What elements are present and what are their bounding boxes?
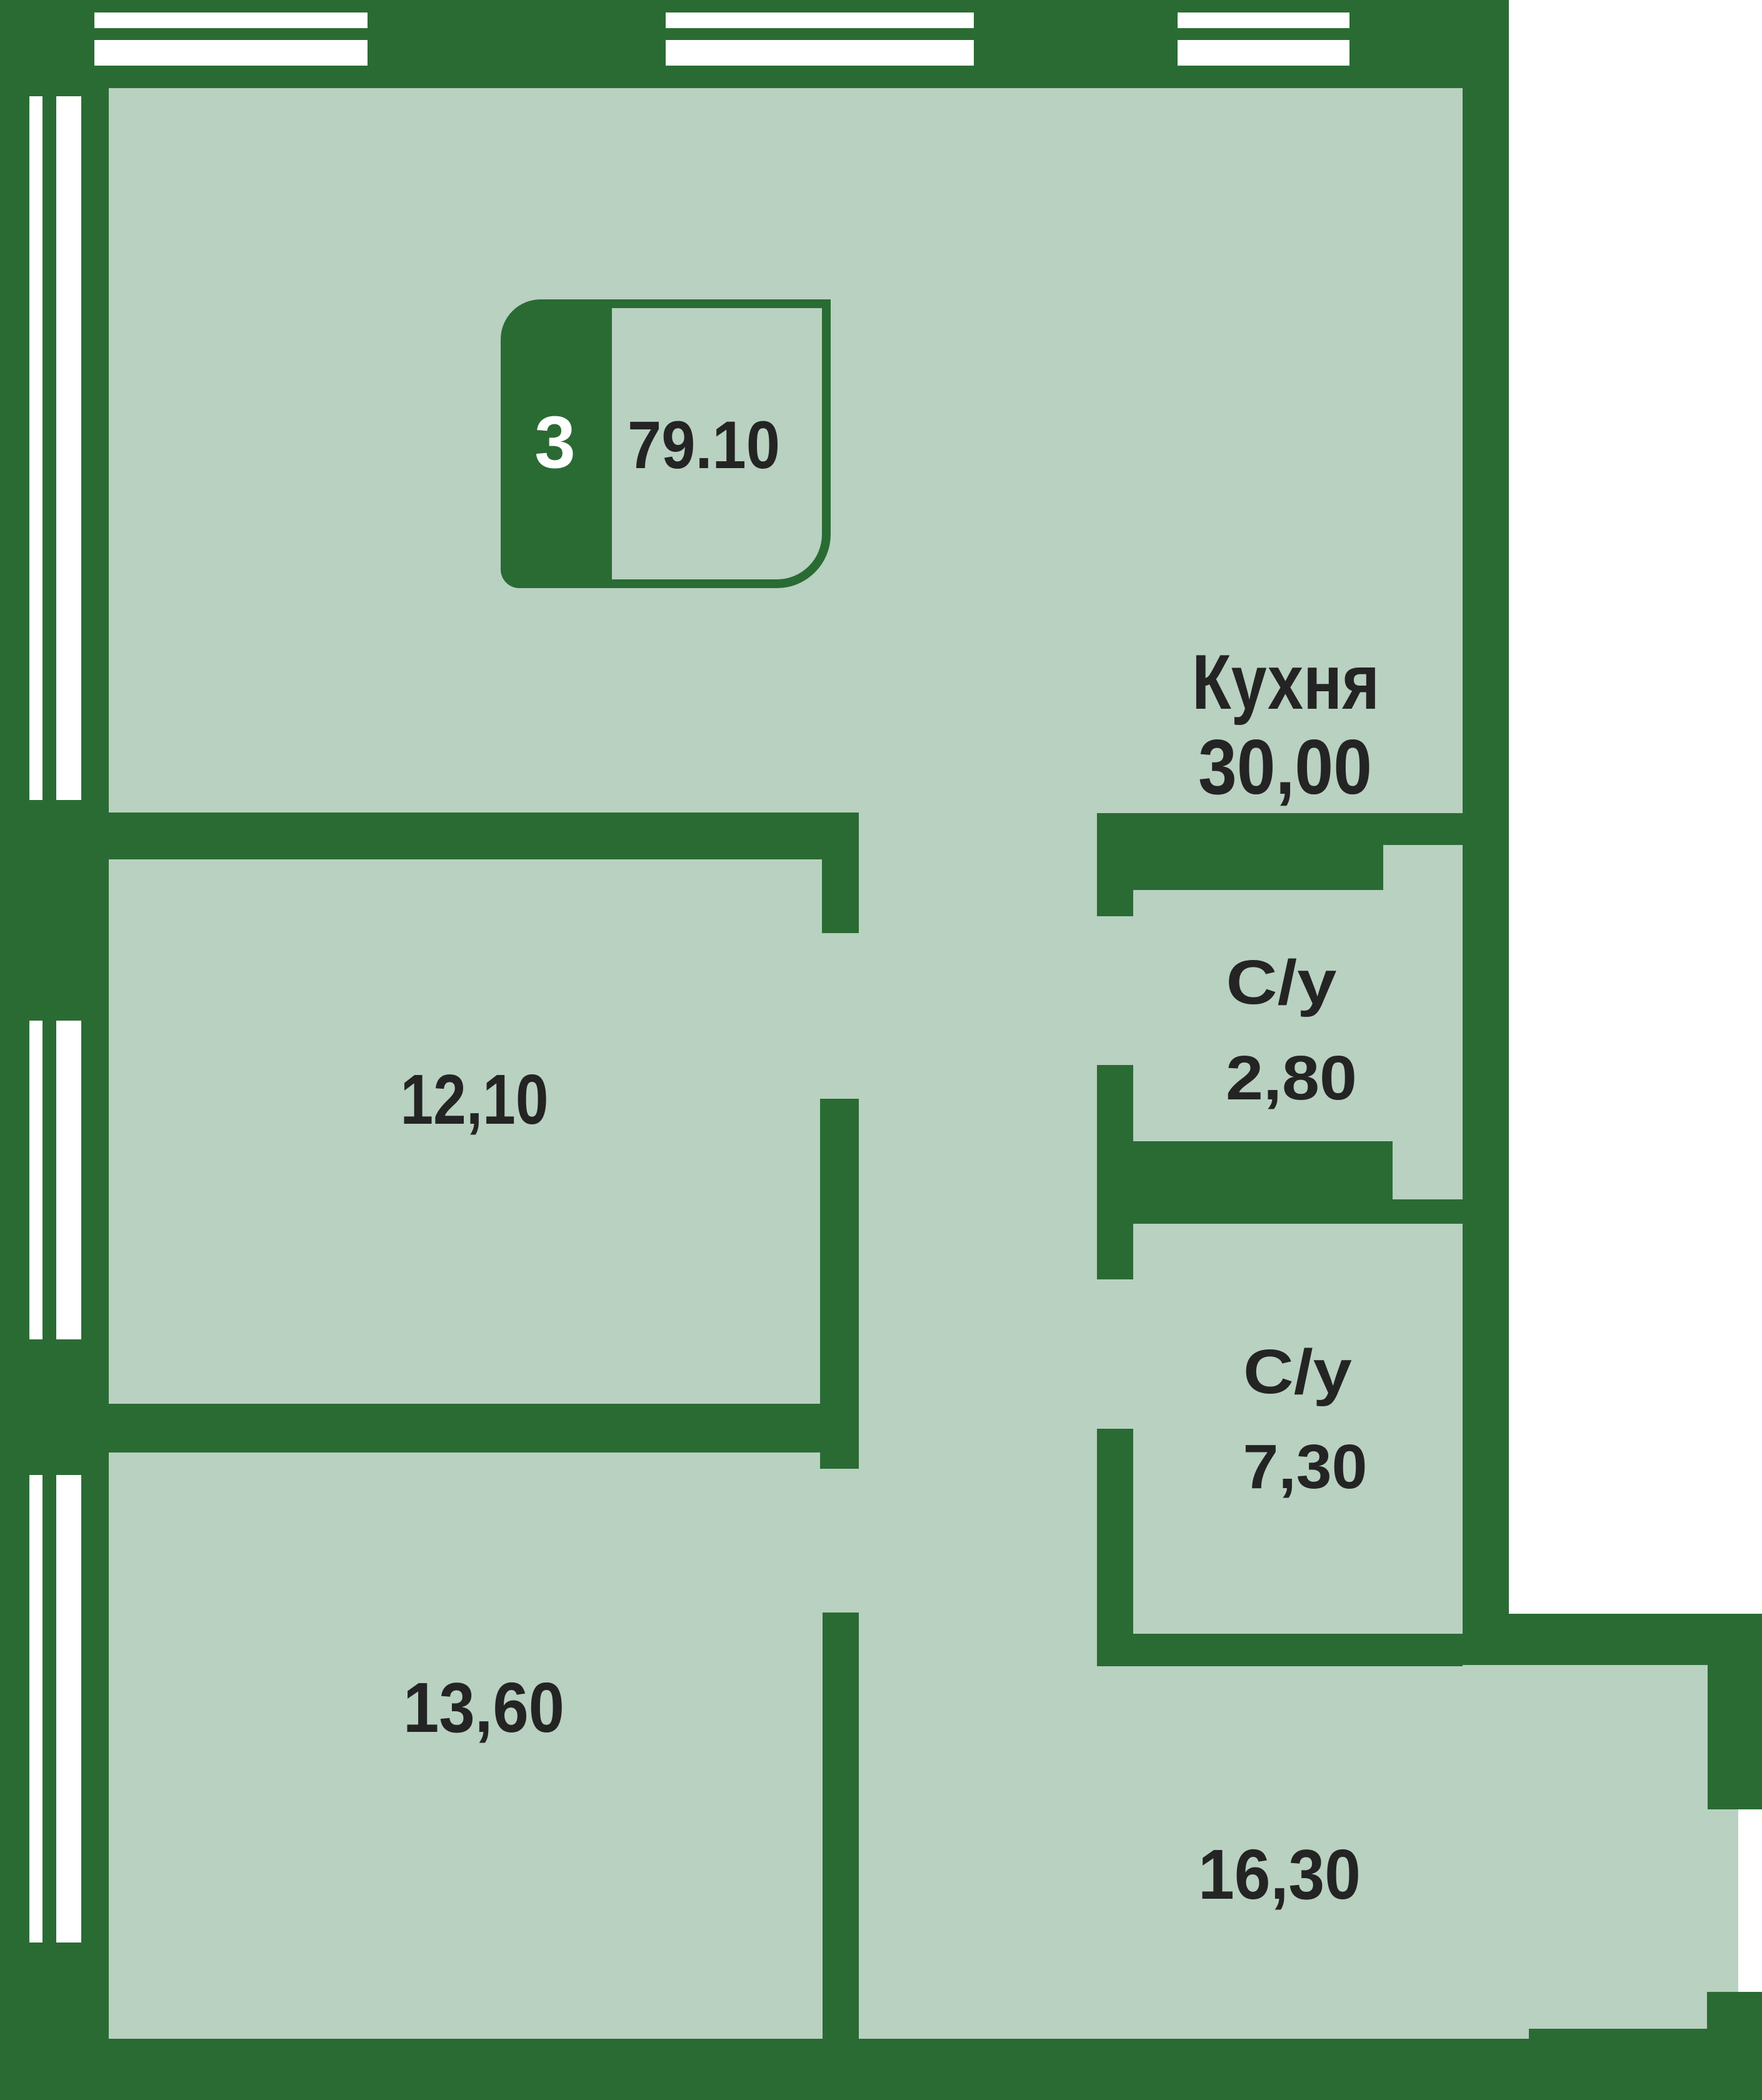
- svg-text:79.10: 79.10: [628, 407, 780, 482]
- svg-text:12,10: 12,10: [401, 1060, 549, 1139]
- svg-text:16,30: 16,30: [1198, 1835, 1361, 1914]
- svg-text:13,60: 13,60: [403, 1668, 564, 1747]
- svg-text:7,30: 7,30: [1243, 1432, 1368, 1502]
- svg-text:3: 3: [534, 401, 576, 484]
- svg-text:Кухня: Кухня: [1192, 639, 1379, 726]
- svg-text:С/у: С/у: [1243, 1337, 1352, 1407]
- svg-text:С/у: С/у: [1226, 947, 1337, 1017]
- svg-text:30,00: 30,00: [1198, 724, 1372, 811]
- svg-text:2,80: 2,80: [1226, 1043, 1357, 1113]
